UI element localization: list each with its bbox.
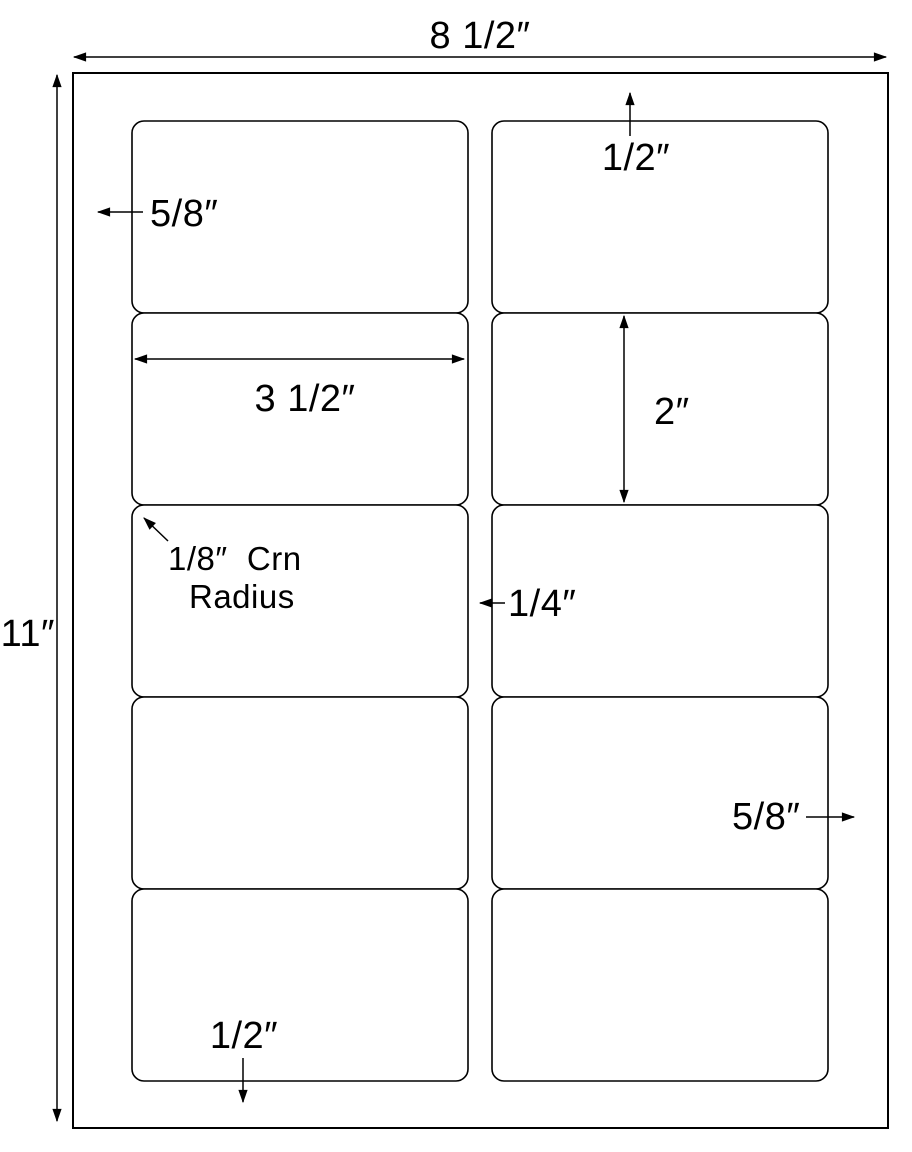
right-margin-label: 5/8″ — [732, 796, 800, 838]
sheet-height-dimension: 11″ — [1, 75, 57, 1121]
sheet-width-dimension: 8 1/2″ — [74, 15, 886, 57]
label-width-dimension-label: 3 1/2″ — [255, 378, 356, 420]
label-sheet-diagram: 8 1/2″ 11″ 5/8″ 1/2″ 3 1/2″ 2″ — [0, 0, 912, 1152]
label-column-1 — [132, 121, 468, 1081]
label-cell-r5c2 — [492, 889, 828, 1081]
bottom-margin-label: 1/2″ — [210, 1015, 278, 1057]
top-margin-label: 1/2″ — [602, 137, 670, 179]
label-cell-r4c1 — [132, 697, 468, 889]
label-cell-r5c1 — [132, 889, 468, 1081]
corner-radius-label-line2: Radius — [189, 578, 295, 615]
label-cell-r4c2 — [492, 697, 828, 889]
sheet-width-dimension-label: 8 1/2″ — [430, 15, 531, 57]
sheet-height-dimension-label: 11″ — [1, 613, 55, 655]
column-gap-label: 1/4″ — [508, 583, 576, 625]
label-sheet-diagram-page: 8 1/2″ 11″ 5/8″ 1/2″ 3 1/2″ 2″ — [0, 0, 912, 1152]
label-height-dimension-label: 2″ — [654, 391, 690, 433]
label-cell-r3c1 — [132, 505, 468, 697]
left-margin-label: 5/8″ — [150, 193, 218, 235]
corner-radius-label-line1: 1/8″ Crn — [168, 540, 302, 577]
